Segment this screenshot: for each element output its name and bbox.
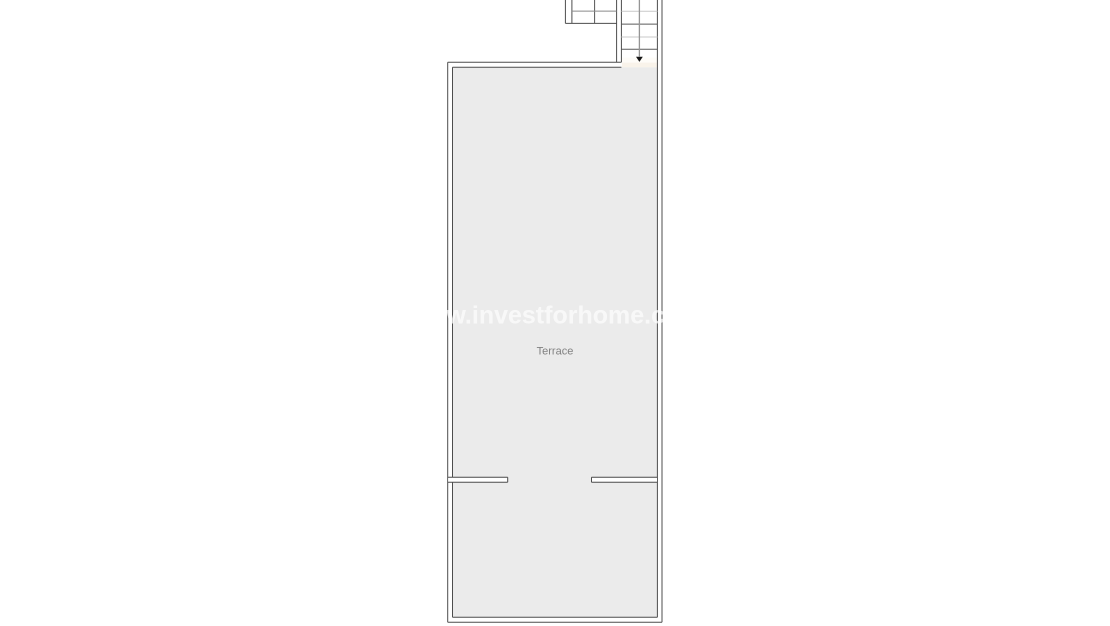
- svg-text:www.investforhome.com: www.investforhome.com: [407, 302, 703, 330]
- svg-text:Terrace: Terrace: [537, 346, 574, 358]
